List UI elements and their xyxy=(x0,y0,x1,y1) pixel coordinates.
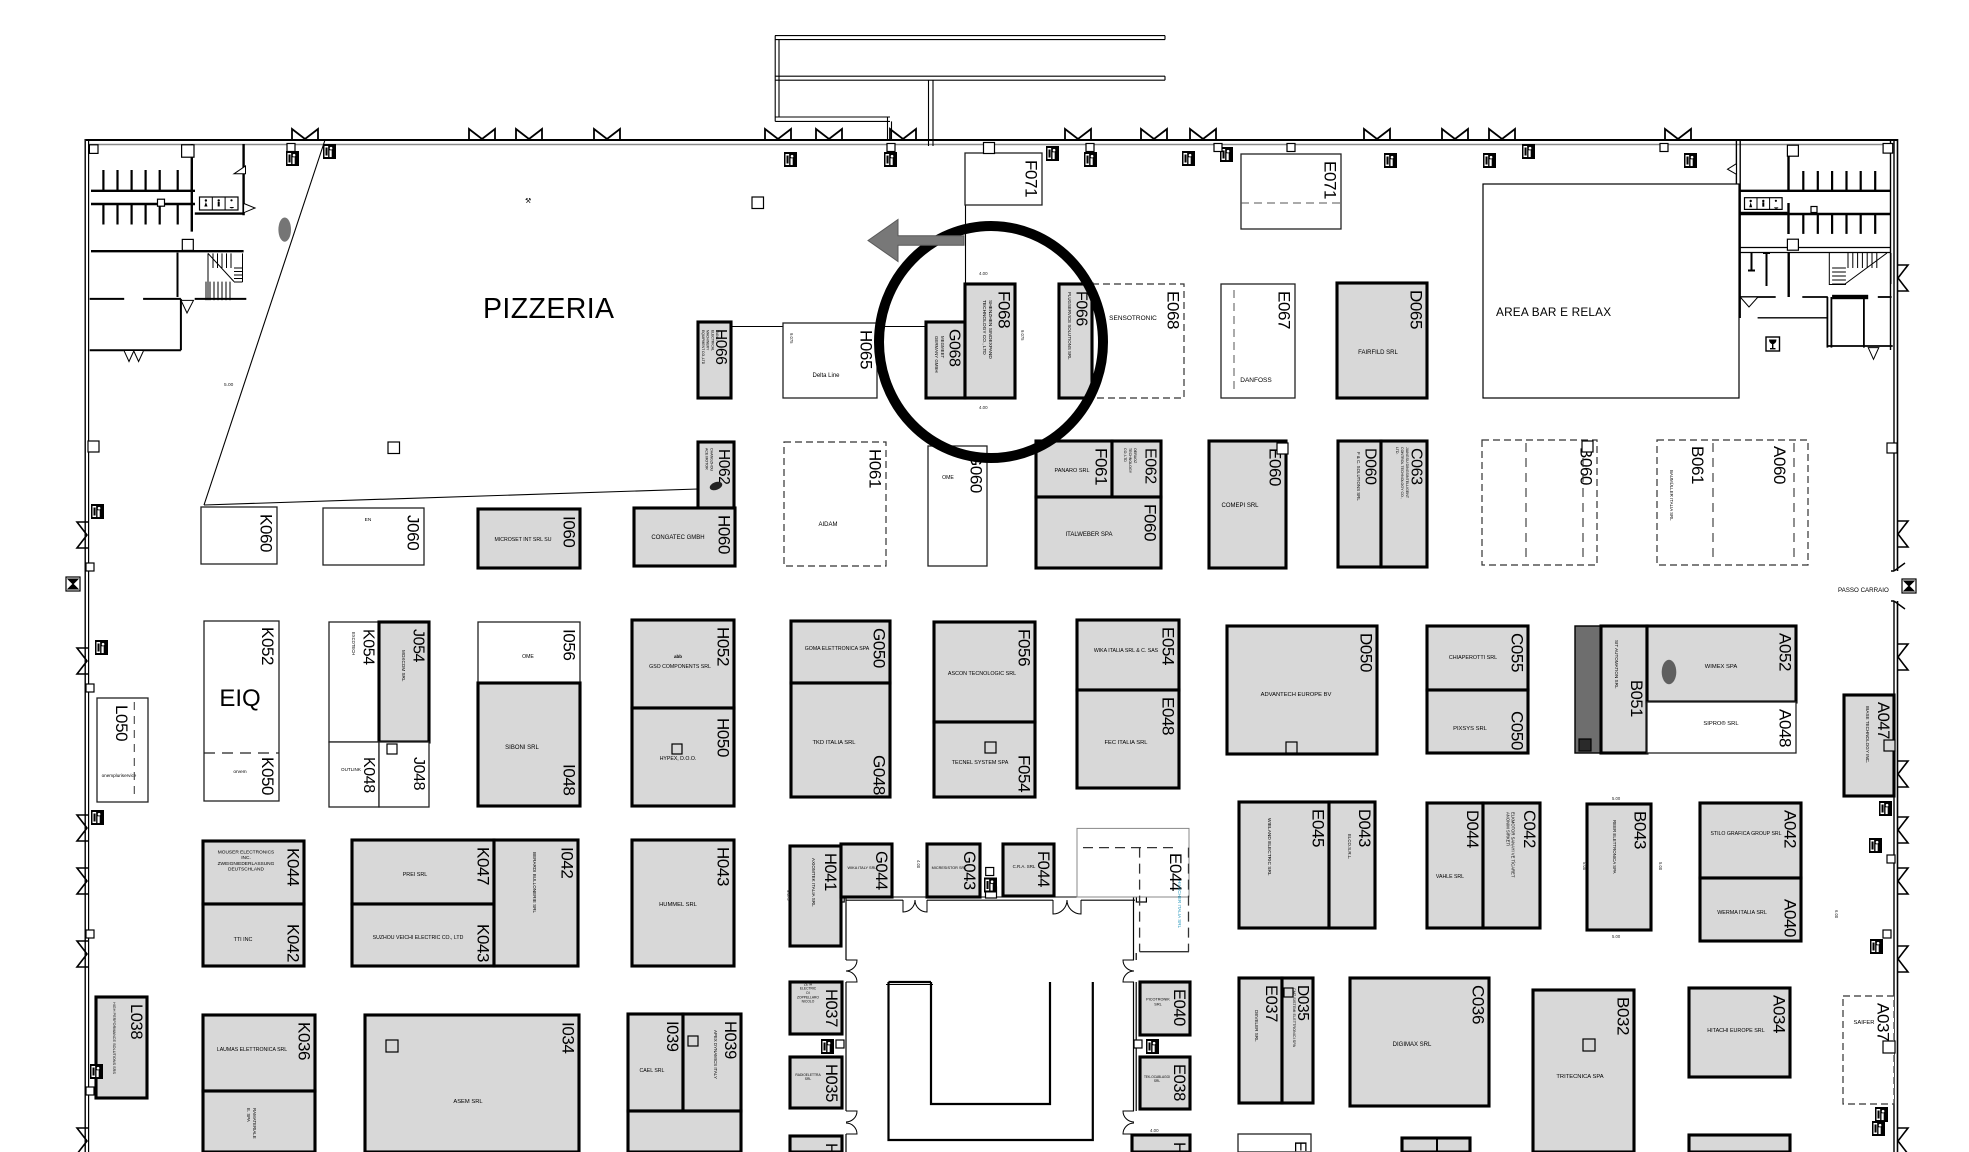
svg-text:K054: K054 xyxy=(360,629,377,665)
svg-text:L038: L038 xyxy=(127,1004,145,1039)
svg-text:TKD ITALIA SRL: TKD ITALIA SRL xyxy=(812,740,856,746)
svg-text:HIGH PERFORMANCE SOLUTIONS SRS: HIGH PERFORMANCE SOLUTIONS SRS xyxy=(112,1002,116,1074)
svg-text:DEVELER SRL: DEVELER SRL xyxy=(1254,1010,1259,1042)
svg-text:J054: J054 xyxy=(410,629,427,663)
svg-text:PREI SRL: PREI SRL xyxy=(403,872,428,878)
svg-text:DANFOSS: DANFOSS xyxy=(1240,377,1272,384)
svg-text:A052: A052 xyxy=(1776,633,1795,671)
svg-text:APEX DYNAMICS ITALY: APEX DYNAMICS ITALY xyxy=(713,1030,718,1079)
svg-text:PIZZERIA: PIZZERIA xyxy=(483,293,614,325)
svg-text:E067: E067 xyxy=(1275,291,1294,329)
svg-text:H050: H050 xyxy=(714,718,733,757)
svg-text:SRL: SRL xyxy=(805,1077,812,1081)
svg-text:I048: I048 xyxy=(560,764,579,796)
svg-text:F068: F068 xyxy=(995,291,1014,328)
svg-text:C.R.A. SRL: C.R.A. SRL xyxy=(1013,864,1036,869)
svg-text:SIPRO® SRL: SIPRO® SRL xyxy=(1703,720,1739,727)
svg-text:H052: H052 xyxy=(714,627,733,666)
svg-text:EQUIPMENT CO.,LTD: EQUIPMENT CO.,LTD xyxy=(701,330,705,365)
svg-text:E040: E040 xyxy=(1170,989,1188,1026)
svg-text:5.00: 5.00 xyxy=(1658,862,1663,871)
svg-text:OME: OME xyxy=(522,654,534,660)
svg-text:E038: E038 xyxy=(1170,1064,1188,1101)
svg-text:F044: F044 xyxy=(1034,851,1052,887)
svg-text:F & C. SOLUTIONS SRL: F & C. SOLUTIONS SRL xyxy=(1356,452,1361,501)
svg-text:SIT AUTOMATION SRL: SIT AUTOMATION SRL xyxy=(1614,640,1619,689)
svg-text:E03: E03 xyxy=(1291,1141,1309,1152)
svg-text:CONTROL TECHNOLOGY CO.,: CONTROL TECHNOLOGY CO., xyxy=(1400,447,1404,499)
svg-text:9.075: 9.075 xyxy=(1020,330,1025,341)
svg-text:MACHINERY: MACHINERY xyxy=(706,330,710,351)
svg-text:OUTLINK: OUTLINK xyxy=(341,767,362,772)
svg-text:TRITECNICA SPA: TRITECNICA SPA xyxy=(1556,1074,1603,1080)
svg-text:5.00: 5.00 xyxy=(1612,934,1621,939)
svg-text:ANONIM SİRKETİ: ANONIM SİRKETİ xyxy=(1505,812,1510,846)
svg-text:C055: C055 xyxy=(1508,633,1527,672)
svg-text:I042: I042 xyxy=(558,847,577,879)
svg-text:B032: B032 xyxy=(1614,997,1633,1035)
svg-text:WIELAND ELECTRIC SRL: WIELAND ELECTRIC SRL xyxy=(1266,818,1272,876)
svg-text:SIBONI SRL: SIBONI SRL xyxy=(505,745,539,751)
svg-text:D065: D065 xyxy=(1407,290,1426,329)
svg-text:A048: A048 xyxy=(1776,709,1795,747)
svg-text:PASSO CARRAIO: PASSO CARRAIO xyxy=(1838,587,1889,594)
svg-text:VAHLE SRL: VAHLE SRL xyxy=(1436,874,1464,880)
svg-text:H065: H065 xyxy=(857,330,876,369)
svg-text:E062: E062 xyxy=(1142,448,1159,484)
svg-text:K048: K048 xyxy=(360,757,377,793)
svg-text:MOXCOM SRL: MOXCOM SRL xyxy=(401,650,406,682)
svg-text:E071: E071 xyxy=(1321,161,1340,199)
svg-text:K052: K052 xyxy=(258,627,277,665)
svg-text:SENSOTRONIC: SENSOTRONIC xyxy=(1109,315,1157,322)
svg-text:PLUGSERVICE SOLUTIONS SRL: PLUGSERVICE SOLUTIONS SRL xyxy=(1067,292,1072,360)
svg-text:B051: B051 xyxy=(1627,680,1645,717)
svg-text:4.00: 4.00 xyxy=(979,271,988,276)
svg-text:4.00: 4.00 xyxy=(1150,1128,1159,1133)
svg-text:J048: J048 xyxy=(410,757,427,791)
svg-text:AREA BAR E RELAX: AREA BAR E RELAX xyxy=(1496,305,1611,319)
svg-text:E048: E048 xyxy=(1159,697,1178,735)
svg-text:CHIAPEROTTI SRL: CHIAPEROTTI SRL xyxy=(1449,655,1497,661)
svg-text:JIANGSU DINGSINTELLIGENT: JIANGSU DINGSINTELLIGENT xyxy=(1405,447,1409,499)
svg-text:WIKA ITALIA SRL & C. SAS: WIKA ITALIA SRL & C. SAS xyxy=(1094,648,1159,654)
svg-text:STILO GRAFICA GROUP SRL: STILO GRAFICA GROUP SRL xyxy=(1710,831,1781,837)
svg-text:B061: B061 xyxy=(1688,446,1707,484)
svg-text:G050: G050 xyxy=(870,628,889,668)
svg-text:K047: K047 xyxy=(474,847,493,885)
svg-text:D043: D043 xyxy=(1355,809,1373,847)
svg-text:AIDAM: AIDAM xyxy=(818,522,837,528)
svg-text:OME: OME xyxy=(942,475,954,481)
svg-text:A047: A047 xyxy=(1874,702,1892,739)
svg-text:F066: F066 xyxy=(1073,291,1090,326)
svg-text:HILSCHER ITALIA SRL: HILSCHER ITALIA SRL xyxy=(1177,880,1182,929)
svg-text:ACE MOTOR: ACE MOTOR xyxy=(705,448,709,470)
svg-text:A040: A040 xyxy=(1781,899,1800,937)
svg-text:K043: K043 xyxy=(474,924,493,962)
svg-text:D060: D060 xyxy=(1362,448,1379,485)
svg-text:PIXSYS SRL: PIXSYS SRL xyxy=(1453,726,1488,732)
svg-text:OERAOZ: OERAOZ xyxy=(1133,448,1137,464)
svg-text:MICRESISTOR SRL: MICRESISTOR SRL xyxy=(932,866,967,870)
svg-text:CO.,LTD: CO.,LTD xyxy=(1123,448,1127,462)
svg-text:A060: A060 xyxy=(1770,446,1789,484)
svg-text:ELCO.S.R.L.: ELCO.S.R.L. xyxy=(1347,834,1352,859)
svg-text:ASEM SRL: ASEM SRL xyxy=(453,1099,483,1105)
svg-text:4.00: 4.00 xyxy=(916,860,921,869)
svg-text:GOMA ELETTRONICA SPA: GOMA ELETTRONICA SPA xyxy=(805,646,870,652)
svg-text:DIGIMAX SRL: DIGIMAX SRL xyxy=(1393,1042,1432,1048)
svg-text:⚒: ⚒ xyxy=(525,197,531,205)
svg-text:E. SPA: E. SPA xyxy=(246,1108,251,1122)
svg-text:GSO COMPONENTS SRL: GSO COMPONENTS SRL xyxy=(649,664,711,670)
svg-text:EIQ: EIQ xyxy=(219,685,260,712)
svg-text:LAUMAS ELETTRONICA SRL: LAUMAS ELETTRONICA SRL xyxy=(217,1047,287,1053)
svg-text:HITACHI EUROPE SRL: HITACHI EUROPE SRL xyxy=(1707,1028,1764,1034)
svg-text:B043: B043 xyxy=(1631,811,1650,849)
svg-text:DEUTSCHLAND: DEUTSCHLAND xyxy=(228,867,265,873)
svg-text:A037: A037 xyxy=(1874,1003,1893,1041)
svg-text:REER ELETTRONICA SPA: REER ELETTRONICA SPA xyxy=(1612,820,1617,874)
svg-text:5.00: 5.00 xyxy=(1612,796,1621,801)
svg-text:ITALWEBER SPA: ITALWEBER SPA xyxy=(1065,532,1112,538)
svg-text:H043: H043 xyxy=(714,847,733,886)
svg-text:SUZHOU VEICHI ELECTRIC CO., LT: SUZHOU VEICHI ELECTRIC CO., LTD xyxy=(373,935,464,941)
svg-text:D044: D044 xyxy=(1463,810,1481,848)
svg-text:ADVANTECH EUROPE BV: ADVANTECH EUROPE BV xyxy=(1261,692,1332,698)
svg-text:F054: F054 xyxy=(1015,755,1034,792)
svg-text:A042: A042 xyxy=(1781,810,1800,848)
svg-text:J060: J060 xyxy=(404,515,423,550)
svg-text:C063: C063 xyxy=(1408,448,1425,485)
svg-text:WERMA ITALIA SRL: WERMA ITALIA SRL xyxy=(1717,910,1767,916)
svg-text:EXCOTECH: EXCOTECH xyxy=(351,632,356,655)
svg-text:CHANGZHOU: CHANGZHOU xyxy=(709,448,713,472)
svg-text:abb: abb xyxy=(674,654,682,659)
svg-text:C042: C042 xyxy=(1520,810,1538,848)
svg-text:H035: H035 xyxy=(822,1064,840,1102)
svg-text:K042: K042 xyxy=(284,924,303,962)
svg-text:BERARDI BULLONERIE SRL: BERARDI BULLONERIE SRL xyxy=(532,852,537,913)
svg-text:G048: G048 xyxy=(870,755,889,795)
svg-text:I056: I056 xyxy=(560,629,579,661)
svg-text:K050: K050 xyxy=(258,757,277,795)
svg-text:4.00: 4.00 xyxy=(979,405,988,410)
svg-text:SAIFER: SAIFER xyxy=(1854,1020,1875,1026)
svg-text:orvem: orvem xyxy=(233,769,246,775)
svg-text:SHENZHEN SINOEXPAND: SHENZHEN SINOEXPAND xyxy=(987,300,993,359)
svg-text:RAMATERIALE: RAMATERIALE xyxy=(252,1108,257,1139)
svg-text:CONGATEC GMBH: CONGATEC GMBH xyxy=(651,535,704,541)
svg-text:H061: H061 xyxy=(866,449,885,488)
svg-text:H041: H041 xyxy=(821,853,839,891)
svg-text:C050: C050 xyxy=(1508,711,1527,750)
svg-text:ZWEIGNIEDERLASSUNG: ZWEIGNIEDERLASSUNG xyxy=(218,861,275,867)
svg-text:PANARO SRL: PANARO SRL xyxy=(1054,468,1089,474)
svg-text:FEC ITALIA SRL: FEC ITALIA SRL xyxy=(1104,740,1148,746)
svg-text:COMEPI SRL: COMEPI SRL xyxy=(1221,503,1259,509)
svg-text:E068: E068 xyxy=(1164,291,1183,329)
svg-text:D050: D050 xyxy=(1357,633,1376,672)
svg-text:K036: K036 xyxy=(295,1022,314,1060)
svg-text:MEGMEET: MEGMEET xyxy=(940,336,945,359)
svg-text:WIMEX SPA: WIMEX SPA xyxy=(1705,664,1738,670)
svg-text:NICOLO: NICOLO xyxy=(802,1000,815,1004)
svg-text:E045: E045 xyxy=(1309,809,1328,847)
svg-text:Delta Line: Delta Line xyxy=(812,373,840,379)
svg-text:F060: F060 xyxy=(1141,504,1160,541)
svg-text:G043: G043 xyxy=(960,851,978,890)
svg-text:H060: H060 xyxy=(715,515,734,554)
svg-text:G068: G068 xyxy=(946,329,963,367)
svg-text:GERMANY GMBH: GERMANY GMBH xyxy=(934,336,939,373)
svg-text:K044: K044 xyxy=(284,848,303,886)
svg-text:TECHNOLOGY: TECHNOLOGY xyxy=(1128,448,1132,474)
svg-text:PICOTRONIK: PICOTRONIK xyxy=(1146,998,1170,1002)
svg-text:H039: H039 xyxy=(721,1021,739,1059)
svg-text:INC.: INC. xyxy=(241,855,251,861)
svg-text:ELKMOTOR SANAYI VE TİCARET: ELKMOTOR SANAYI VE TİCARET xyxy=(1511,812,1516,878)
svg-text:A034: A034 xyxy=(1770,995,1789,1033)
svg-text:9.075: 9.075 xyxy=(789,333,794,344)
svg-text:F056: F056 xyxy=(1015,629,1034,666)
svg-text:F071: F071 xyxy=(1022,160,1041,197)
svg-text:H031: H031 xyxy=(1170,1142,1188,1152)
svg-text:ASCON TECNOLOGIC SRL: ASCON TECNOLOGIC SRL xyxy=(948,671,1016,677)
svg-text:HYPEX, D.O.O.: HYPEX, D.O.O. xyxy=(660,756,697,762)
svg-text:5.00: 5.00 xyxy=(1582,862,1587,871)
svg-text:EN: EN xyxy=(365,517,372,523)
svg-text:E054: E054 xyxy=(1159,627,1178,665)
svg-text:AXIOMTEK ITALIA SRL: AXIOMTEK ITALIA SRL xyxy=(811,858,816,907)
svg-text:BAUMÜLLER ITALIA SRL: BAUMÜLLER ITALIA SRL xyxy=(1669,470,1674,521)
svg-text:L050: L050 xyxy=(112,705,131,741)
svg-text:6.00: 6.00 xyxy=(1834,910,1839,919)
svg-text:FAIRFILD SRL: FAIRFILD SRL xyxy=(1358,350,1398,356)
svg-text:H033: H033 xyxy=(822,1143,840,1152)
svg-text:H037: H037 xyxy=(822,989,840,1027)
svg-text:B060: B060 xyxy=(1577,447,1596,485)
svg-text:C036: C036 xyxy=(1469,985,1488,1024)
svg-text:F061: F061 xyxy=(1092,448,1111,485)
svg-text:IBASE TECHNOLOGY INC.: IBASE TECHNOLOGY INC. xyxy=(1865,706,1870,763)
svg-text:H062: H062 xyxy=(715,449,732,484)
svg-text:CAEL SRL: CAEL SRL xyxy=(640,1068,665,1074)
svg-text:9.075: 9.075 xyxy=(786,890,791,901)
svg-text:SRL: SRL xyxy=(1154,1079,1160,1083)
svg-text:I034: I034 xyxy=(559,1022,578,1054)
svg-text:5.00: 5.00 xyxy=(224,382,234,388)
svg-text:HUMMEL SRL: HUMMEL SRL xyxy=(659,902,698,908)
svg-text:G044: G044 xyxy=(872,851,890,890)
svg-text:TTI INC: TTI INC xyxy=(234,937,253,943)
svg-text:LTD.: LTD. xyxy=(1395,447,1399,455)
svg-text:TECNEL SYSTEM SPA: TECNEL SYSTEM SPA xyxy=(952,760,1009,766)
svg-text:SRL: SRL xyxy=(1154,1002,1161,1006)
svg-text:WIKA ITALY SRL: WIKA ITALY SRL xyxy=(848,866,877,870)
svg-text:I039: I039 xyxy=(663,1021,681,1052)
svg-text:K060: K060 xyxy=(257,514,276,552)
svg-text:MOUSER ELECTRONICS: MOUSER ELECTRONICS xyxy=(218,849,275,855)
svg-text:onempluriservice: onempluriservice xyxy=(102,773,137,778)
svg-text:I060: I060 xyxy=(560,516,579,548)
svg-text:E037: E037 xyxy=(1262,985,1280,1022)
svg-text:ELECTRICAL: ELECTRICAL xyxy=(710,330,714,351)
svg-text:TECHNOLOGY CO., LTD: TECHNOLOGY CO., LTD xyxy=(981,300,987,355)
svg-text:MICROSET INT SRL SU: MICROSET INT SRL SU xyxy=(495,537,552,543)
svg-text:TIANLI: TIANLI xyxy=(715,330,719,341)
